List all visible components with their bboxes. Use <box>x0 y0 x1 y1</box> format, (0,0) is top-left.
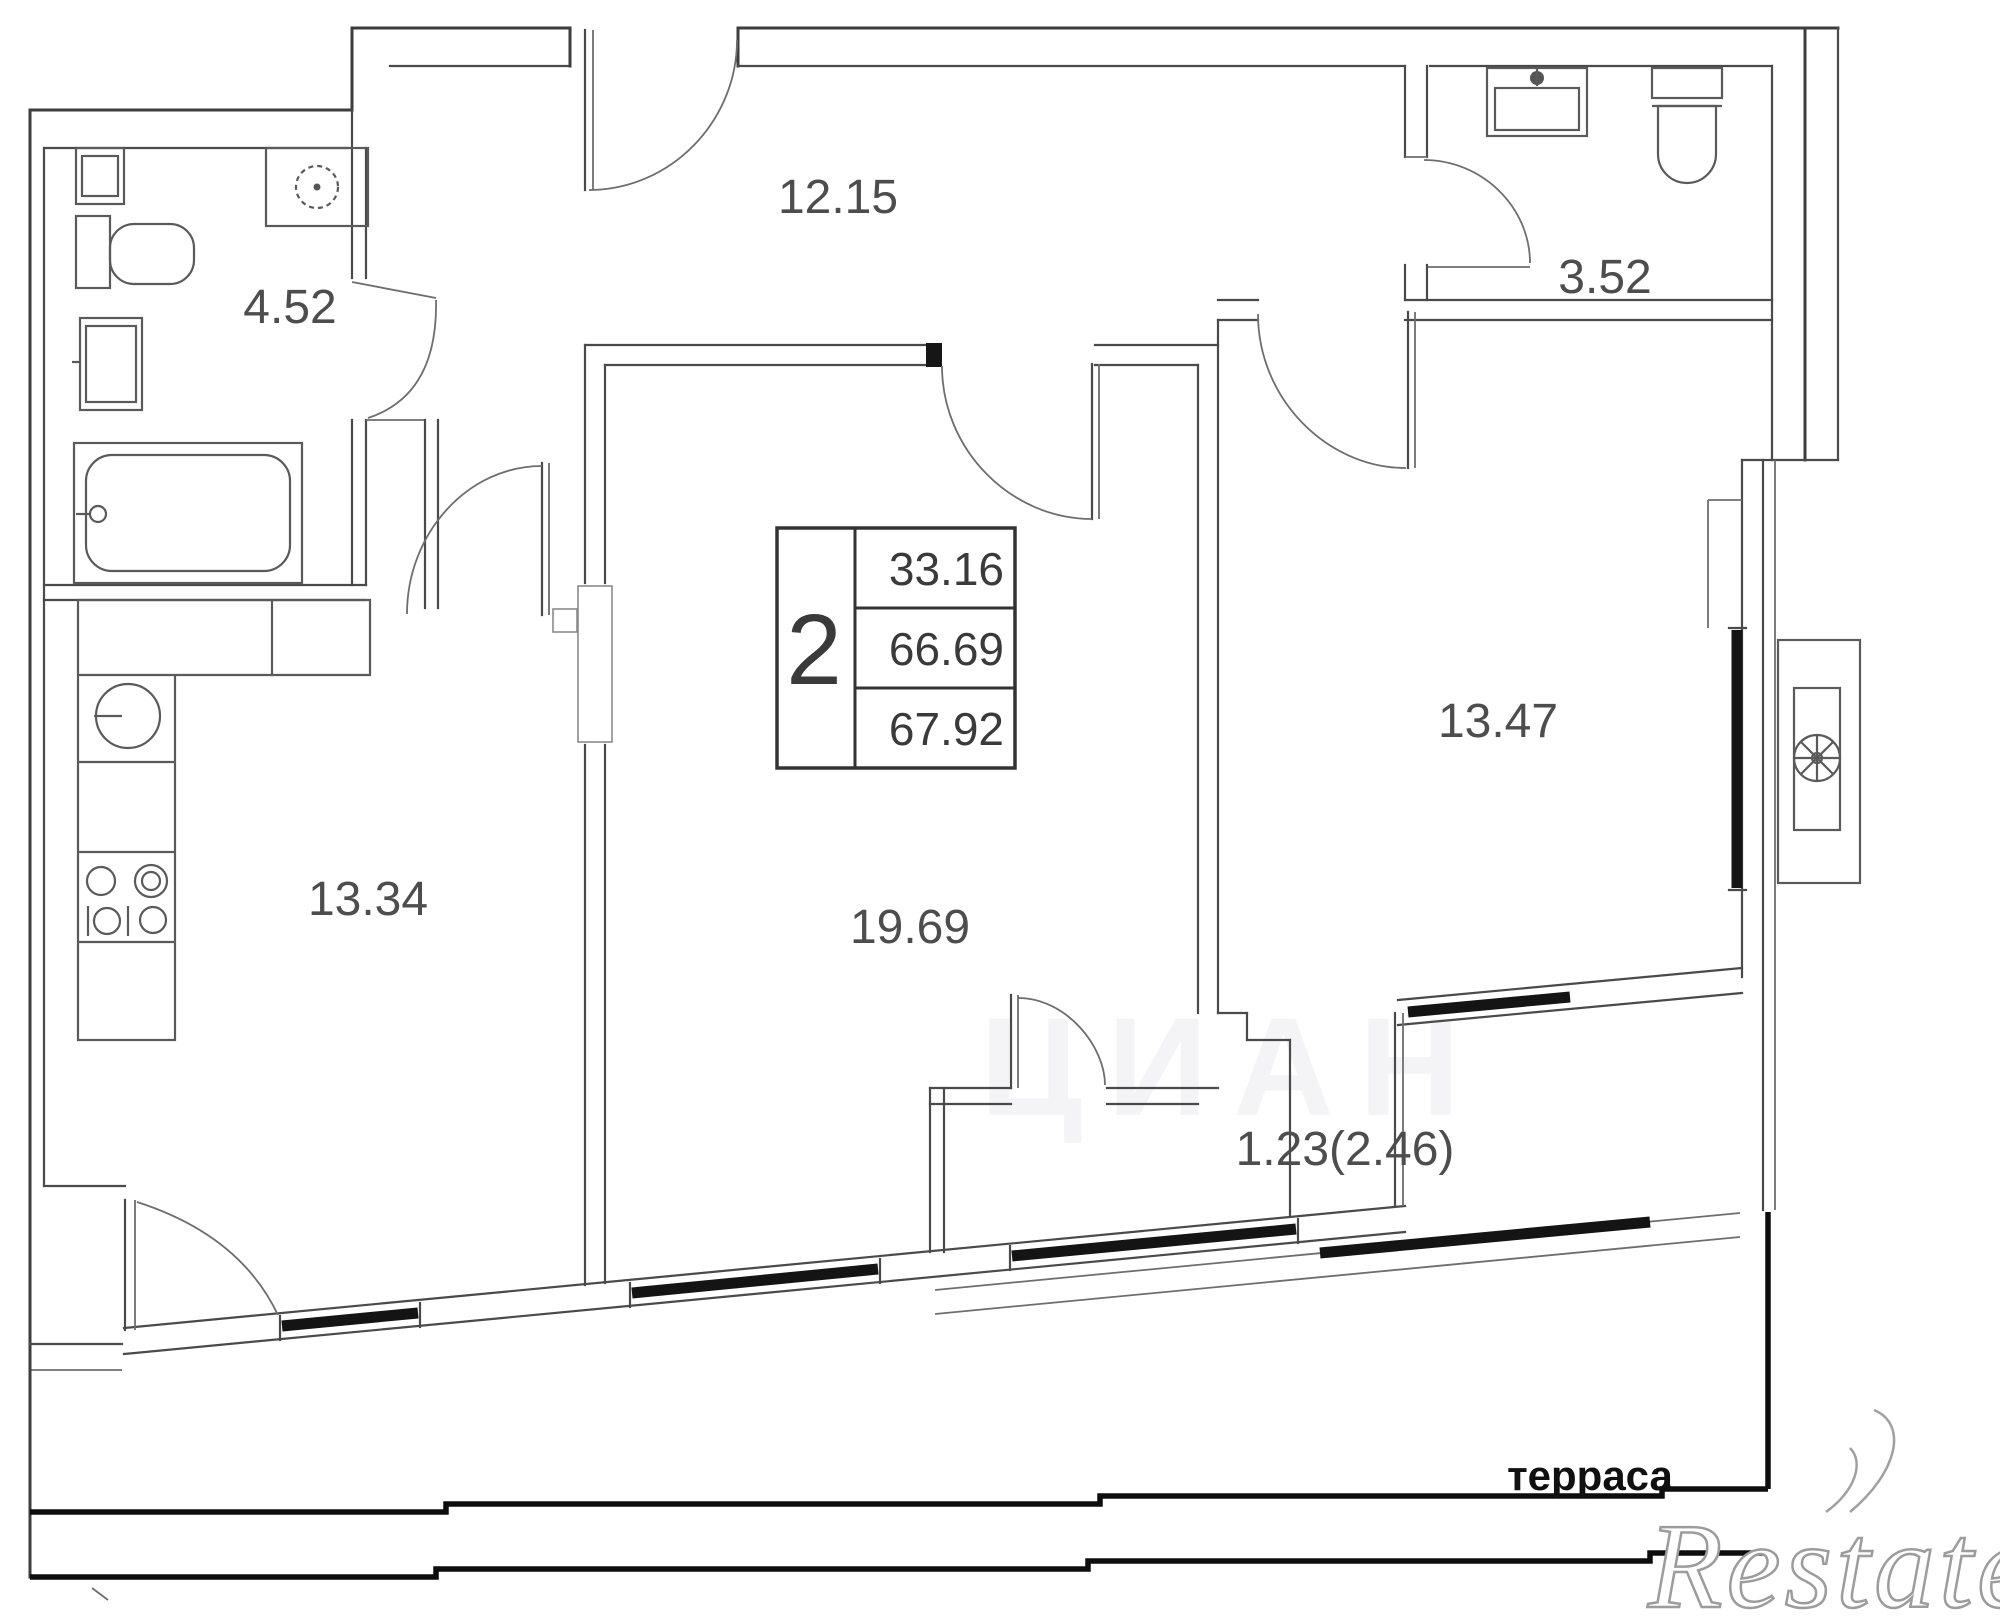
kitchen-door <box>407 463 549 615</box>
room-label-hallway: 12.15 <box>778 171 898 224</box>
living-area-value: 33.16 <box>889 543 1004 595</box>
room-label-bedroom: 13.47 <box>1438 695 1558 748</box>
brand-watermark-text: Restate <box>1647 1499 2000 1623</box>
bathroom-door <box>352 282 436 418</box>
entrance-door <box>585 30 737 190</box>
rooms-count: 2 <box>786 594 842 706</box>
kitchen-sink-icon <box>94 684 160 748</box>
wc-sink-icon <box>1487 68 1587 136</box>
bedroom-door <box>1258 312 1415 468</box>
area-table: 2 33.16 66.69 67.92 <box>777 528 1015 768</box>
total-area-value: 67.92 <box>889 703 1004 755</box>
room-label-living-room: 19.69 <box>850 901 970 954</box>
washing-machine-icon <box>76 148 124 204</box>
floor-plan: ЦИАН <box>0 0 2000 1623</box>
terrace-door <box>125 1200 278 1330</box>
room-label-kitchen: 13.34 <box>308 873 428 926</box>
terrace-boundary <box>30 1212 1768 1577</box>
area-value: 66.69 <box>889 623 1004 675</box>
kitchen-counter <box>78 600 370 1040</box>
brand-watermark: Restate <box>1647 1410 2000 1623</box>
bathroom-sink-icon <box>72 318 142 410</box>
floor-plan-page: ЦИАН <box>0 0 2000 1623</box>
room-label-wc: 3.52 <box>1558 251 1651 304</box>
living-room-door <box>942 364 1099 519</box>
toilet-icon <box>76 216 194 288</box>
bathtub-icon <box>74 443 302 583</box>
wc-toilet-icon <box>1652 68 1722 183</box>
room-label-balcony: 1.23(2.46) <box>1236 1123 1455 1176</box>
stove-icon <box>87 865 167 936</box>
terrace-label: терраса <box>1507 1452 1673 1499</box>
room-label-bathroom: 4.52 <box>243 281 336 334</box>
wc-door <box>1424 160 1530 267</box>
ac-unit-icon <box>1778 640 1860 883</box>
